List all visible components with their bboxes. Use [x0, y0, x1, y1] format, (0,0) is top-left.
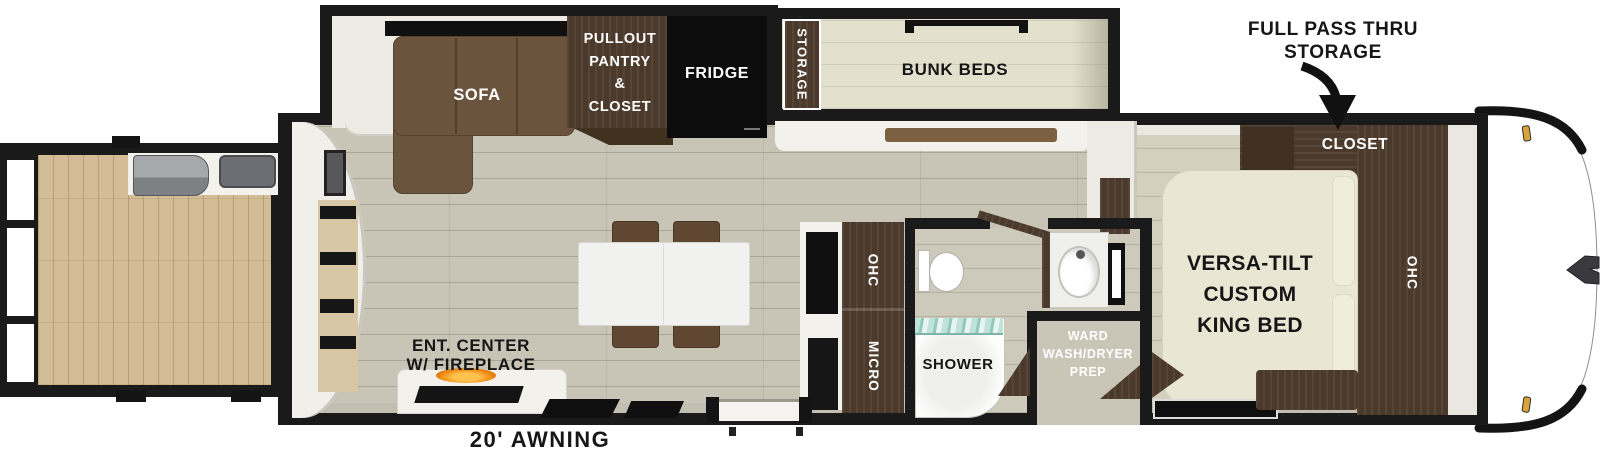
sofa-label: SOFA [415, 86, 539, 108]
step-tread [320, 206, 356, 219]
cabinet-divider [842, 308, 904, 311]
fridge-label: FRIDGE [667, 64, 767, 84]
window [624, 401, 684, 418]
micro-label: MICRO [842, 322, 904, 410]
ent-center-label-line: W/ FIREPLACE [385, 355, 557, 374]
bunk-storage-cabinet: STORAGE [783, 19, 821, 110]
pantry-label-line: PANTRY [569, 51, 671, 74]
ent-center-label-line: ENT. CENTER [385, 336, 557, 355]
entry-door-post [799, 397, 812, 423]
rear-entry-steps [318, 200, 358, 392]
clearance-light-bottom [1522, 397, 1531, 413]
awning-label: 20' AWNING [428, 427, 652, 451]
bunk-window-end [905, 20, 914, 33]
ward-label: WARD WASH/DRYER PREP [1030, 327, 1146, 385]
dining-table [578, 242, 750, 326]
king-bed-label-line: CUSTOM [1166, 279, 1334, 310]
pantry-label-line: & [569, 73, 671, 96]
deck-railing-slot [7, 160, 34, 220]
window [540, 399, 620, 418]
bathroom-wall [905, 218, 915, 425]
rear-door-window [324, 150, 346, 196]
ward-room-wall [1027, 311, 1152, 321]
toilet [929, 252, 964, 292]
step-tread [320, 299, 354, 313]
bathroom-window-pane [1112, 250, 1121, 298]
vanity-edge [1042, 232, 1050, 308]
main-entry-door [719, 399, 799, 421]
front-wall-face [1448, 125, 1477, 415]
step-tread [320, 252, 356, 265]
awning-arm [796, 427, 803, 436]
step-tread [320, 336, 356, 349]
awning-arm [729, 427, 736, 436]
king-bed-label: VERSA-TILT CUSTOM KING BED [1166, 248, 1334, 348]
under-bunk-counter-top [885, 128, 1057, 142]
pass-thru-callout-line: FULL PASS THRU [1225, 18, 1441, 41]
closet-label: CLOSET [1295, 136, 1415, 154]
entry-door-post [706, 397, 719, 423]
sofa-window [385, 21, 568, 36]
bedroom-ohc-label: OHC [1390, 242, 1434, 304]
clearance-light-top [1522, 126, 1531, 142]
king-bed-label-line: VERSA-TILT [1166, 248, 1334, 279]
faucet [1076, 250, 1085, 259]
pass-thru-arrow [1290, 60, 1360, 135]
pantry-label-line: PULLOUT [569, 28, 671, 51]
outdoor-grill [133, 155, 209, 196]
ent-center-shelf [414, 386, 524, 403]
kitchen-ohc-text: OHC [865, 253, 880, 287]
bedroom-ohc-text: OHC [1404, 256, 1420, 291]
bunk-window [905, 20, 1028, 26]
pantry-label-line: CLOSET [569, 96, 671, 119]
bathroom-wall [905, 218, 990, 229]
deck-hinge [116, 390, 146, 402]
bunk-room-shading [1072, 19, 1108, 109]
bunk-beds-label: BUNK BEDS [850, 60, 1060, 82]
micro-text: MICRO [866, 341, 881, 392]
dining-table-seam [663, 243, 664, 325]
floorplan-canvas: SOFA PULLOUT PANTRY & CLOSET FRIDGE STOR… [0, 0, 1600, 452]
deck-railing-slot [7, 228, 34, 316]
ward-label-line: WASH/DRYER [1030, 345, 1146, 363]
shower-glass [915, 318, 1003, 335]
ward-label-line: PREP [1030, 363, 1146, 381]
ent-center-label: ENT. CENTER W/ FIREPLACE [385, 336, 557, 376]
bed-foot-bench [1256, 370, 1358, 410]
sofa-slide-wall [320, 5, 332, 117]
bathroom-wall [1048, 218, 1152, 229]
pillow [1332, 176, 1355, 286]
bunk-storage-label: STORAGE [795, 28, 810, 100]
deck-hinge [112, 136, 140, 148]
oven [808, 338, 838, 410]
pantry-label: PULLOUT PANTRY & CLOSET [569, 28, 671, 120]
cooktop [806, 232, 838, 314]
fridge-handle [744, 128, 760, 130]
kitchen-ohc-label: OHC [842, 235, 904, 305]
pass-thru-callout: FULL PASS THRU STORAGE [1225, 18, 1441, 66]
bathroom-wall [1140, 218, 1152, 425]
shower-label: SHOWER [908, 356, 1008, 374]
bunk-window-end [1019, 20, 1028, 33]
outdoor-sink [219, 155, 276, 188]
deck-hinge [231, 390, 261, 402]
king-bed-label-line: KING BED [1166, 310, 1334, 341]
deck-railing-slot [7, 324, 34, 382]
ward-label-line: WARD [1030, 327, 1146, 345]
